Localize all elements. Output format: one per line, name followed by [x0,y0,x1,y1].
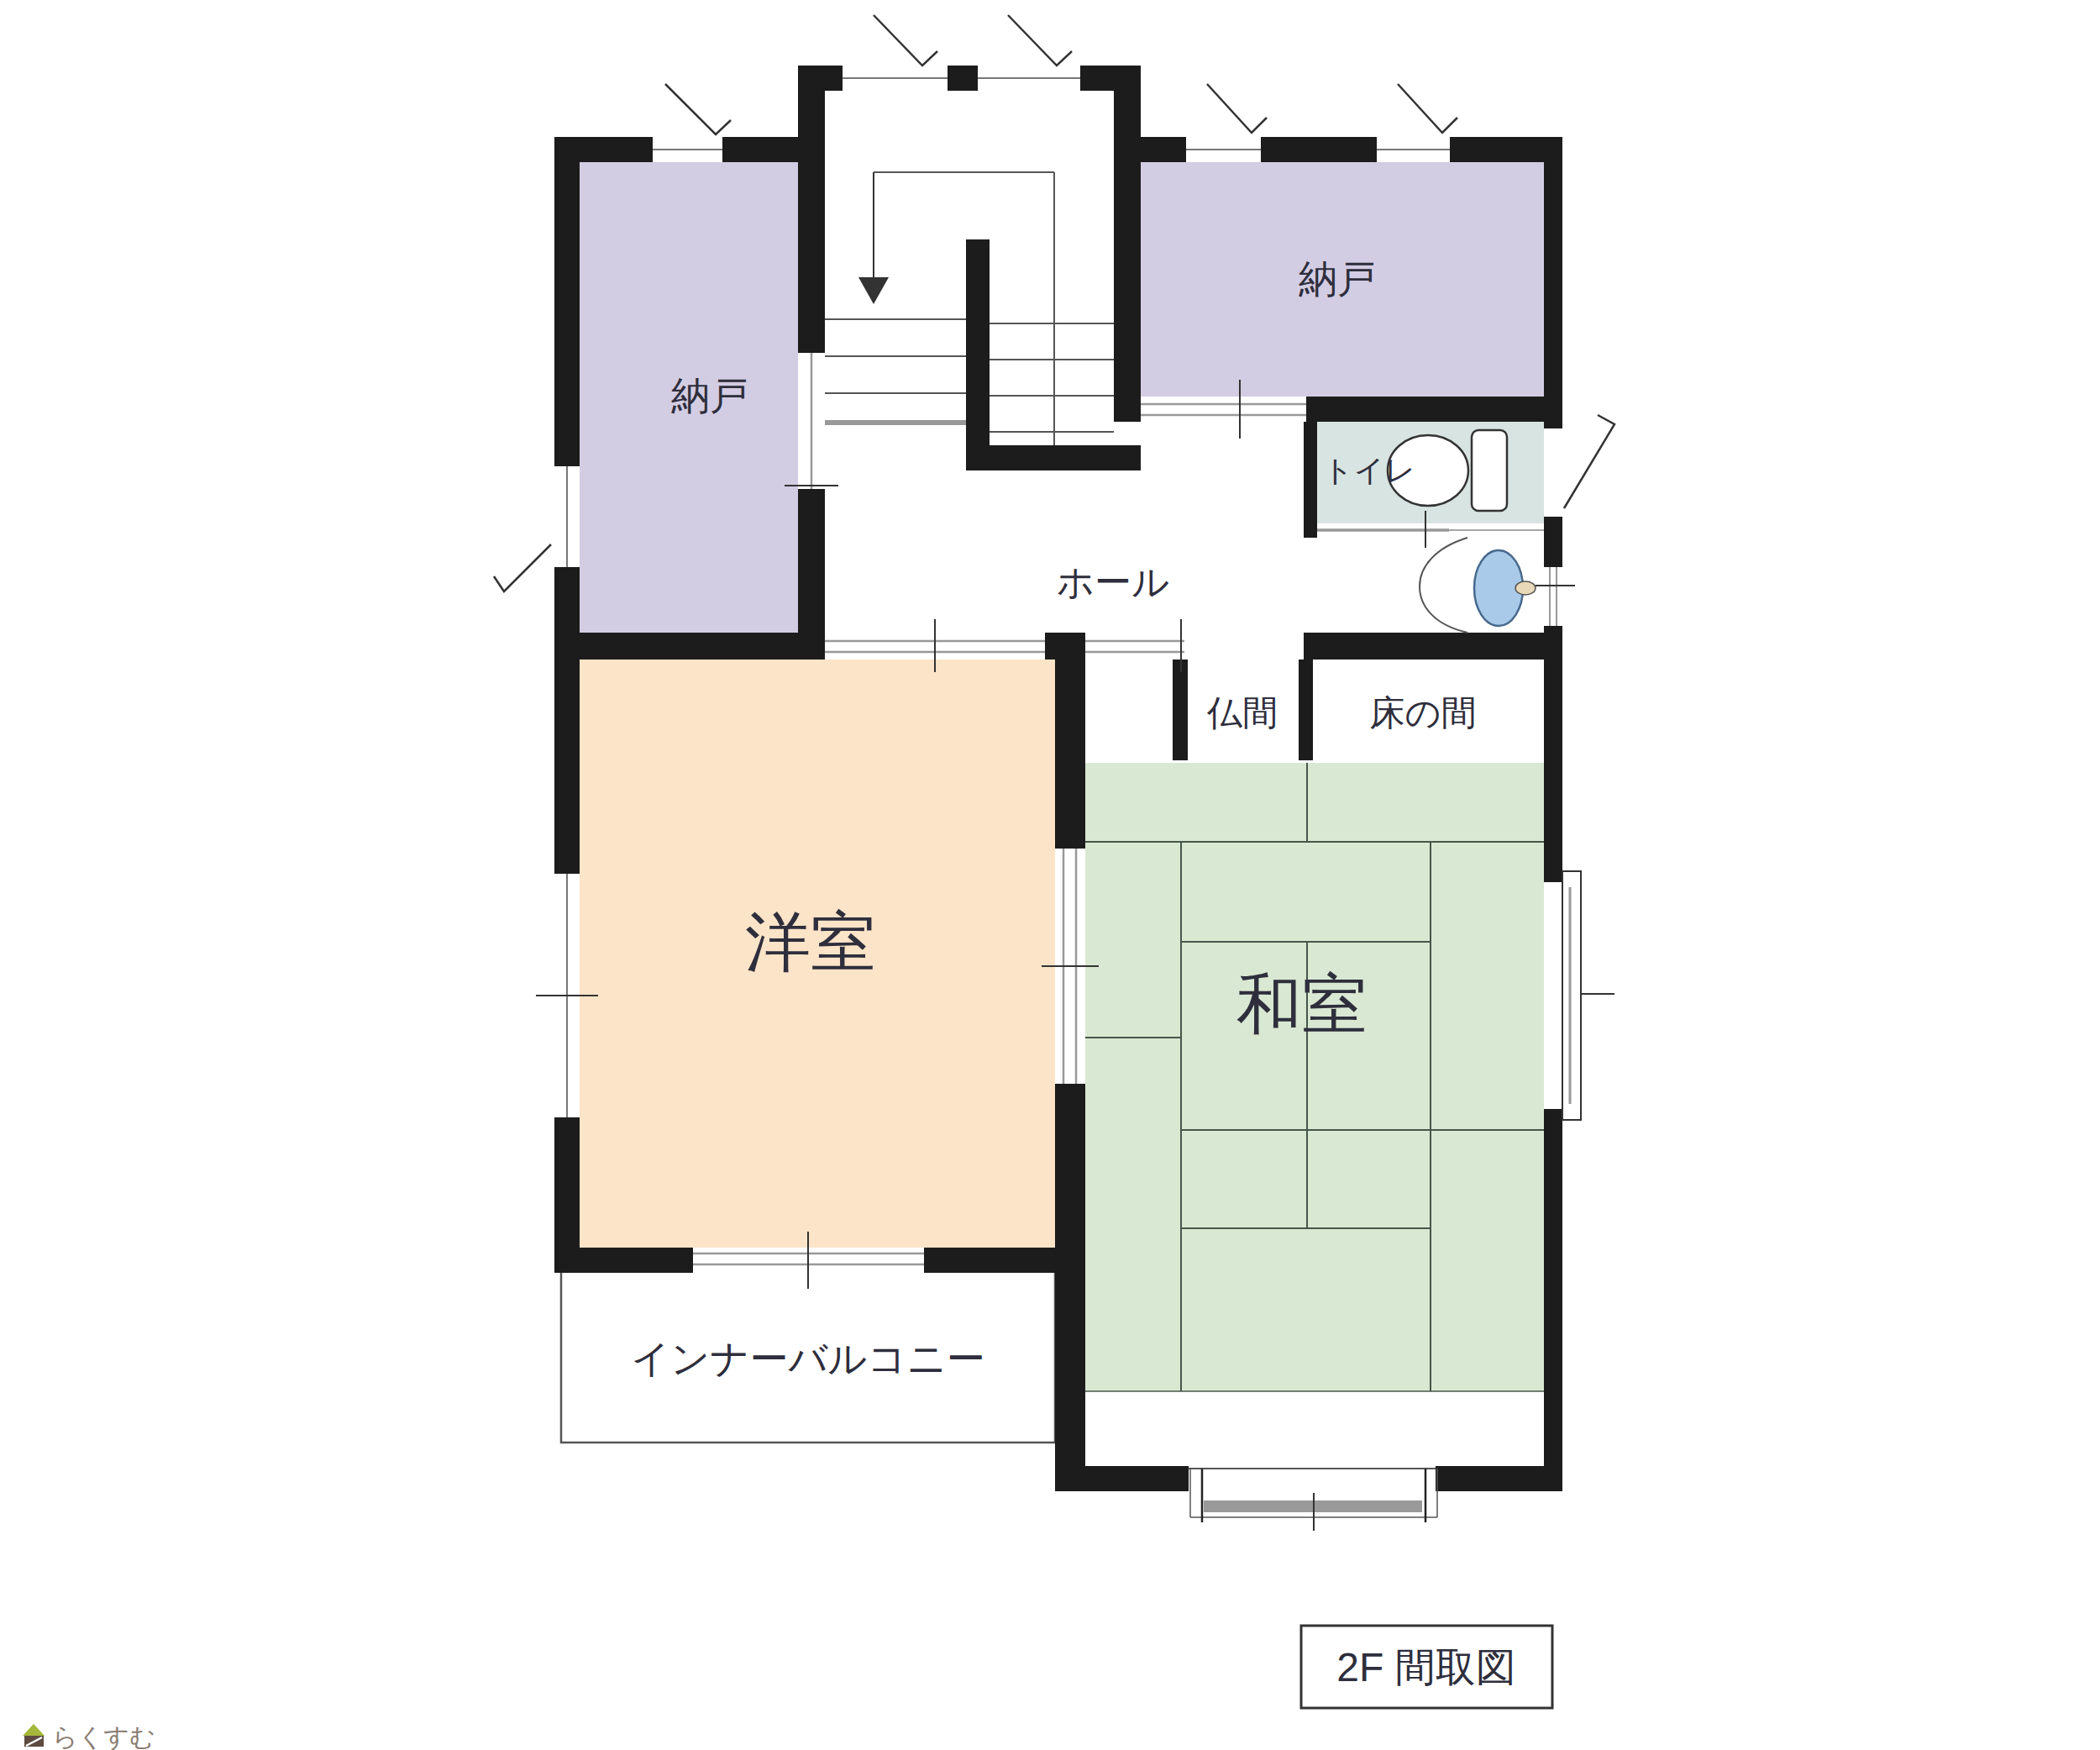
label-inner-balcony: インナーバルコニー [631,1337,985,1380]
door-storageR [1141,397,1306,422]
label-japanese-room: 和室 [1236,967,1368,1041]
window-japanese-right-gap [1544,882,1562,1109]
wall-toilet-left [1304,422,1317,538]
room-japanese-fill [1085,763,1544,1391]
label-storage-right: 納戸 [1299,257,1376,301]
door-toilet [1544,428,1562,517]
window-japanese-right-frame [1562,871,1581,1120]
floor-plan-canvas: 納戸 納戸 トイレ ホール 仏間 床の間 洋室 和室 インナーバルコニー 2F … [0,0,2100,1750]
watermark-text: らくすむ [52,1723,155,1750]
window-japanese-bottom-gap [1189,1466,1436,1491]
label-storage-left: 納戸 [671,374,748,418]
label-western-room: 洋室 [745,905,876,979]
wall-storageR-top [1114,137,1562,162]
wall-stair-divider [966,239,990,470]
label-hall: ホール [1057,561,1169,602]
door-hall-japanese [1085,633,1184,660]
label-toilet: トイレ [1323,453,1416,487]
label-butsuma: 仏間 [1206,693,1278,733]
label-tokonoma: 床の間 [1370,693,1477,733]
wall-stair-bottom [966,445,1141,470]
opening-butsuma [1184,633,1304,660]
wall-butsuma-stub-left [1173,660,1188,760]
title-box: 2F 間取図 [1301,1626,1552,1708]
floor-plan-2f: 納戸 納戸 トイレ ホール 仏間 床の間 洋室 和室 インナーバルコニー 2F … [0,0,2100,1750]
wall-butsuma-stub-right [1299,660,1313,760]
window-basin [1544,567,1562,626]
floor-title: 2F 間取図 [1336,1645,1515,1690]
wall-right-outer [1544,137,1562,1491]
